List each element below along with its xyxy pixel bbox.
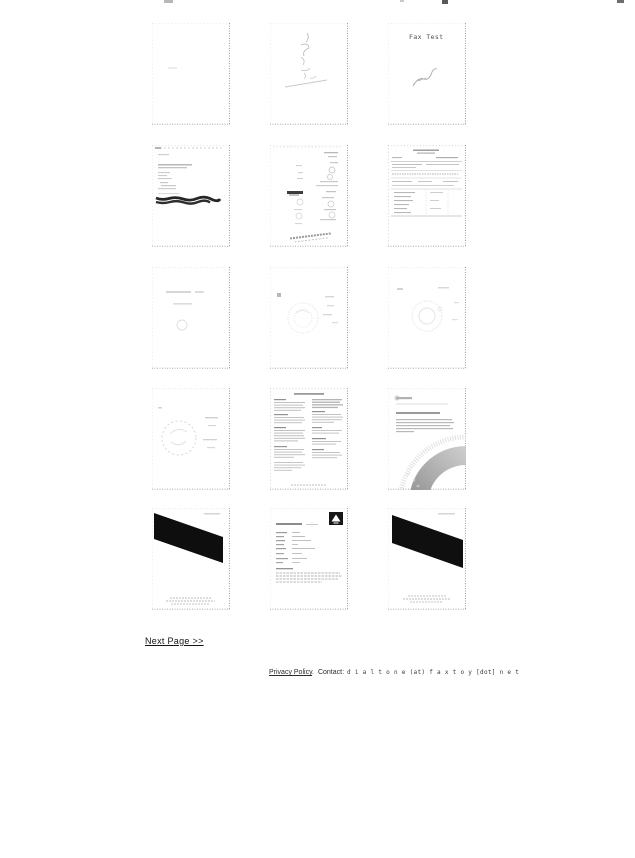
fax-thumbnail-13[interactable] [152, 508, 230, 610]
fax-page-sketch-form-document [388, 145, 466, 247]
clipped-header-fragment [442, 0, 448, 4]
fax-thumbnail-1[interactable] [152, 23, 230, 125]
fax-page-sketch-blank-page [152, 23, 230, 125]
clipped-header-fragment [617, 0, 624, 3]
next-page-link[interactable]: Next Page >> [145, 636, 204, 646]
fax-thumbnail-7[interactable] [152, 267, 230, 369]
fax-thumbnail-6[interactable] [388, 145, 466, 247]
fax-thumbnail-5[interactable] [270, 145, 348, 247]
fax-thumbnail-4[interactable] [152, 145, 230, 247]
fax-thumbnail-15[interactable] [388, 508, 466, 610]
fax-page-sketch-black-diagonal-band-page [388, 508, 466, 610]
fax-page-sketch-faint-text-page [152, 267, 230, 369]
fax-page-sketch-two-column-document [270, 388, 348, 490]
fax-thumbnail-11[interactable] [270, 388, 348, 490]
fax-thumbnail-10[interactable] [152, 388, 230, 490]
footer-separator: . [312, 669, 314, 676]
fax-page-sketch-faint-circle-sketch [152, 388, 230, 490]
fax-thumbnail-14[interactable] [270, 508, 348, 610]
fax-page-sketch-handwritten-scrawl [270, 23, 348, 125]
footer: Privacy Policy. Contact:d i a l t o n e … [269, 669, 519, 676]
fax-thumbnail-8[interactable] [270, 267, 348, 369]
fax-thumbnail-2[interactable] [270, 23, 348, 125]
fax-thumbnail-12[interactable] [388, 388, 466, 490]
contact-address: d i a l t o n e (at) f a x t o y [dot] n… [347, 669, 519, 676]
fax-page-sketch-letter-with-arc-graphic [388, 388, 466, 490]
clipped-header-fragment [400, 0, 404, 2]
fax-page-sketch-handwritten-list [270, 145, 348, 247]
fax-page-sketch-faint-seal-page [388, 267, 466, 369]
fax-page-sketch-black-diagonal-band-page [152, 508, 230, 610]
fax-page-sketch-cover-sheet-with-logo [270, 508, 348, 610]
fax-thumbnail-9[interactable] [388, 267, 466, 369]
fax-page-sketch-letter-with-redacted-line [152, 145, 230, 247]
fax-thumbnail-3[interactable]: Fax Test [388, 23, 466, 125]
fax-page-sketch-faint-seal-page [270, 267, 348, 369]
clipped-header-fragment [164, 0, 173, 3]
privacy-policy-link[interactable]: Privacy Policy [269, 669, 312, 676]
faxtoy-gallery-page: Fax Test Next Page >> Privacy Policy. Co… [0, 0, 635, 858]
contact-label: Contact: [318, 669, 344, 676]
fax-test-text: Fax Test [409, 33, 444, 41]
